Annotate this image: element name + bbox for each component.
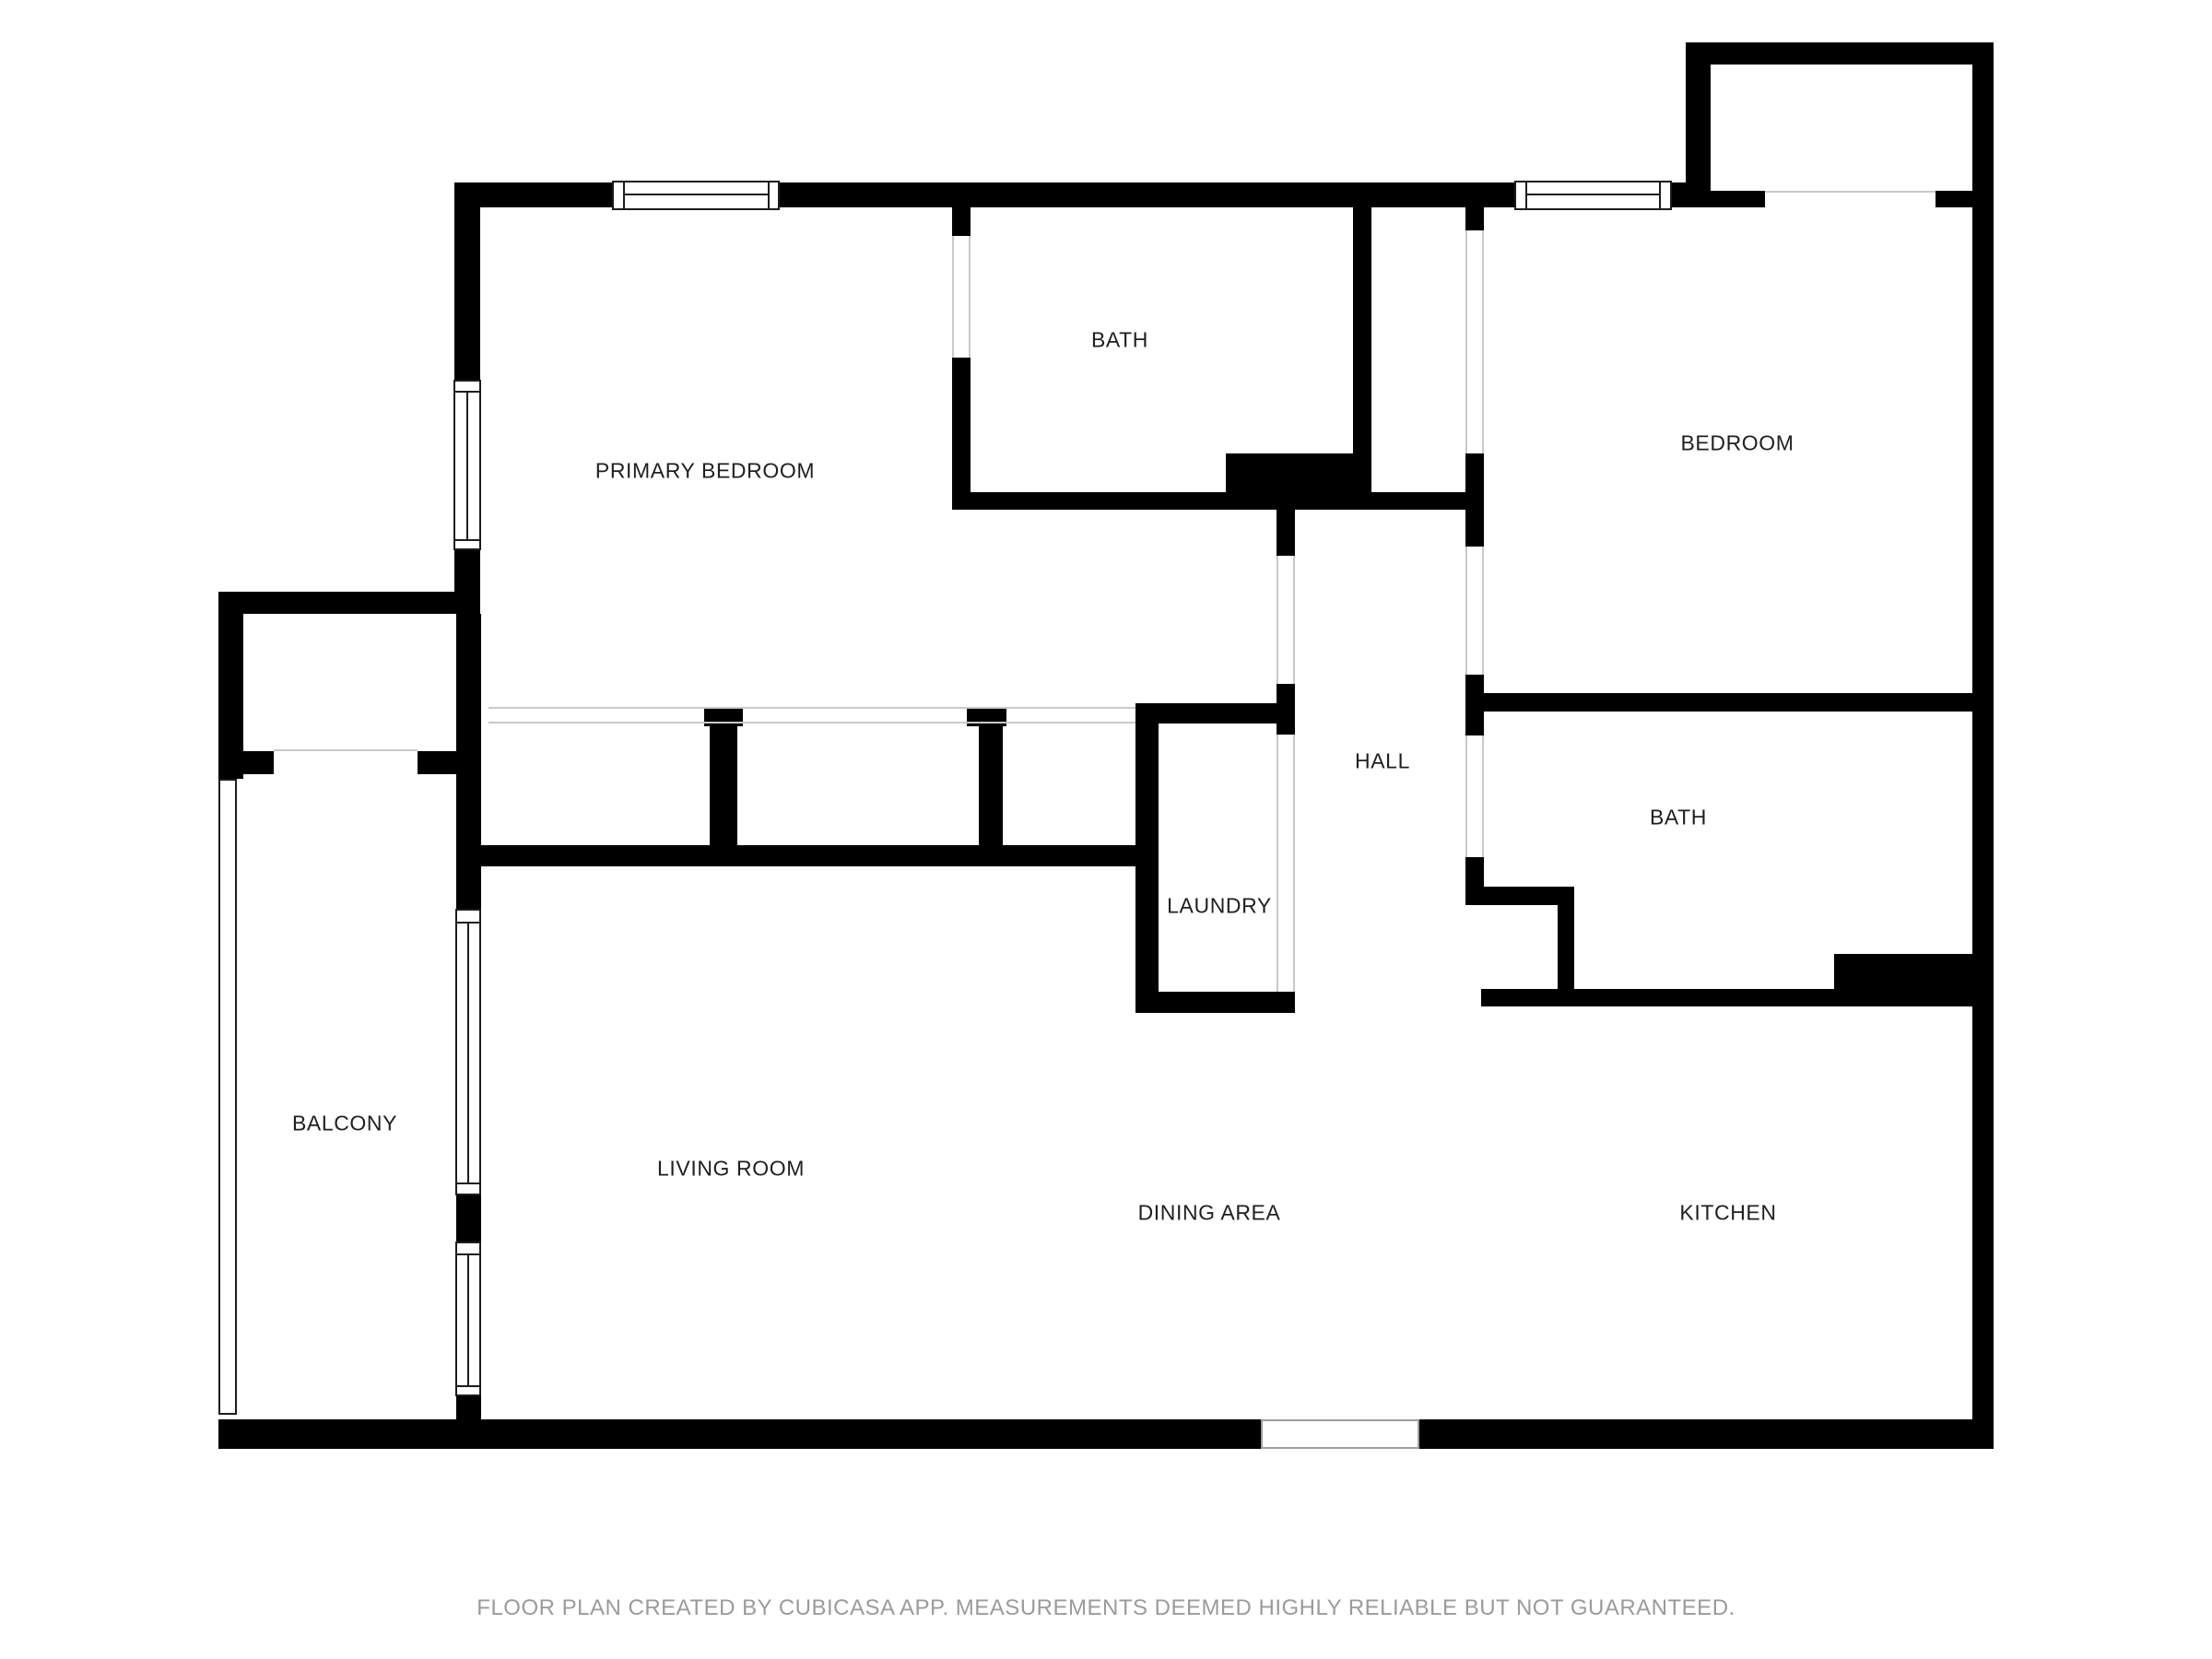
door-opening [1465,735,1484,857]
window [218,779,237,1415]
wall-segment [1277,510,1295,556]
window-pane-line [768,182,770,208]
wall-segment [1135,992,1295,1013]
door-opening [1465,230,1484,453]
room-label-hall: HALL [1355,749,1410,774]
wall-segment [1353,207,1371,453]
window-pane-line [623,182,625,208]
window-pane-line [1527,194,1659,195]
opening-boundary-line [274,749,418,751]
room-label-primary-bedroom: PRIMARY BEDROOM [595,459,815,484]
window-pane-line [457,1385,479,1387]
window-pane-line [1659,182,1661,208]
wall-segment [1686,42,1994,65]
wall-segment [1972,65,1994,1449]
window-pane-line [466,393,468,539]
room-label-bedroom: BEDROOM [1680,431,1794,456]
door-opening [1465,547,1484,675]
footer-disclaimer: FLOOR PLAN CREATED BY CUBICASA APP. MEAS… [477,1595,1735,1621]
floor-plan-canvas: PRIMARY BEDROOM BATH BEDROOM HALL LAUNDR… [0,0,2212,1659]
room-label-kitchen: KITCHEN [1679,1201,1776,1226]
wall-segment [952,358,971,492]
wall-segment [218,1419,1261,1449]
door-opening [1277,735,1295,992]
wall-segment [1465,207,1484,230]
window-pane-line [625,194,768,195]
window-pane-line [455,539,479,541]
room-label-bath-top: BATH [1091,328,1148,353]
window-pane-line [457,1182,479,1184]
wall-segment [218,751,274,774]
wall-segment [1711,191,1765,207]
wall-segment [1686,42,1711,207]
wall-segment [454,207,480,380]
wall-segment [454,182,612,207]
opening-boundary-line [1765,191,1935,193]
wall-segment [1465,453,1484,547]
room-label-dining-area: DINING AREA [1138,1201,1281,1226]
wall-segment [456,1396,481,1419]
sliding-door [1261,1419,1419,1449]
room-label-balcony: BALCONY [292,1112,397,1136]
wall-segment [1484,887,1574,905]
wall-segment [1465,675,1484,735]
wall-segment [1226,453,1371,492]
window-pane-line [467,1255,469,1385]
room-label-laundry: LAUNDRY [1167,894,1272,919]
wall-segment [1277,684,1295,735]
opening-boundary-line [488,722,1135,724]
wall-segment [1419,1419,1994,1449]
wall-segment [1159,703,1295,724]
wall-segment [710,708,737,845]
wall-segment [456,845,1159,866]
window-pane-line [1525,182,1527,208]
door-opening [952,236,971,358]
wall-segment [704,708,743,726]
opening-boundary-line [488,707,1135,709]
wall-segment [1834,954,1972,1006]
wall-segment [979,708,1003,845]
wall-segment [218,592,480,614]
wall-segment [952,492,1467,510]
wall-segment [1465,857,1484,905]
room-label-bath-right: BATH [1650,806,1707,830]
door-opening [1277,556,1295,684]
wall-segment [952,207,971,236]
window [1514,181,1672,210]
wall-segment [1935,191,1972,207]
wall-segment [1135,703,1159,1013]
wall-segment [967,708,1006,726]
wall-segment [1672,182,1686,207]
room-label-living-room: LIVING ROOM [657,1157,805,1182]
window [612,181,780,210]
wall-segment [456,1195,481,1241]
window-pane-line [467,924,469,1182]
wall-segment [780,182,1514,207]
wall-segment [418,751,456,774]
wall-segment [1484,693,1994,712]
